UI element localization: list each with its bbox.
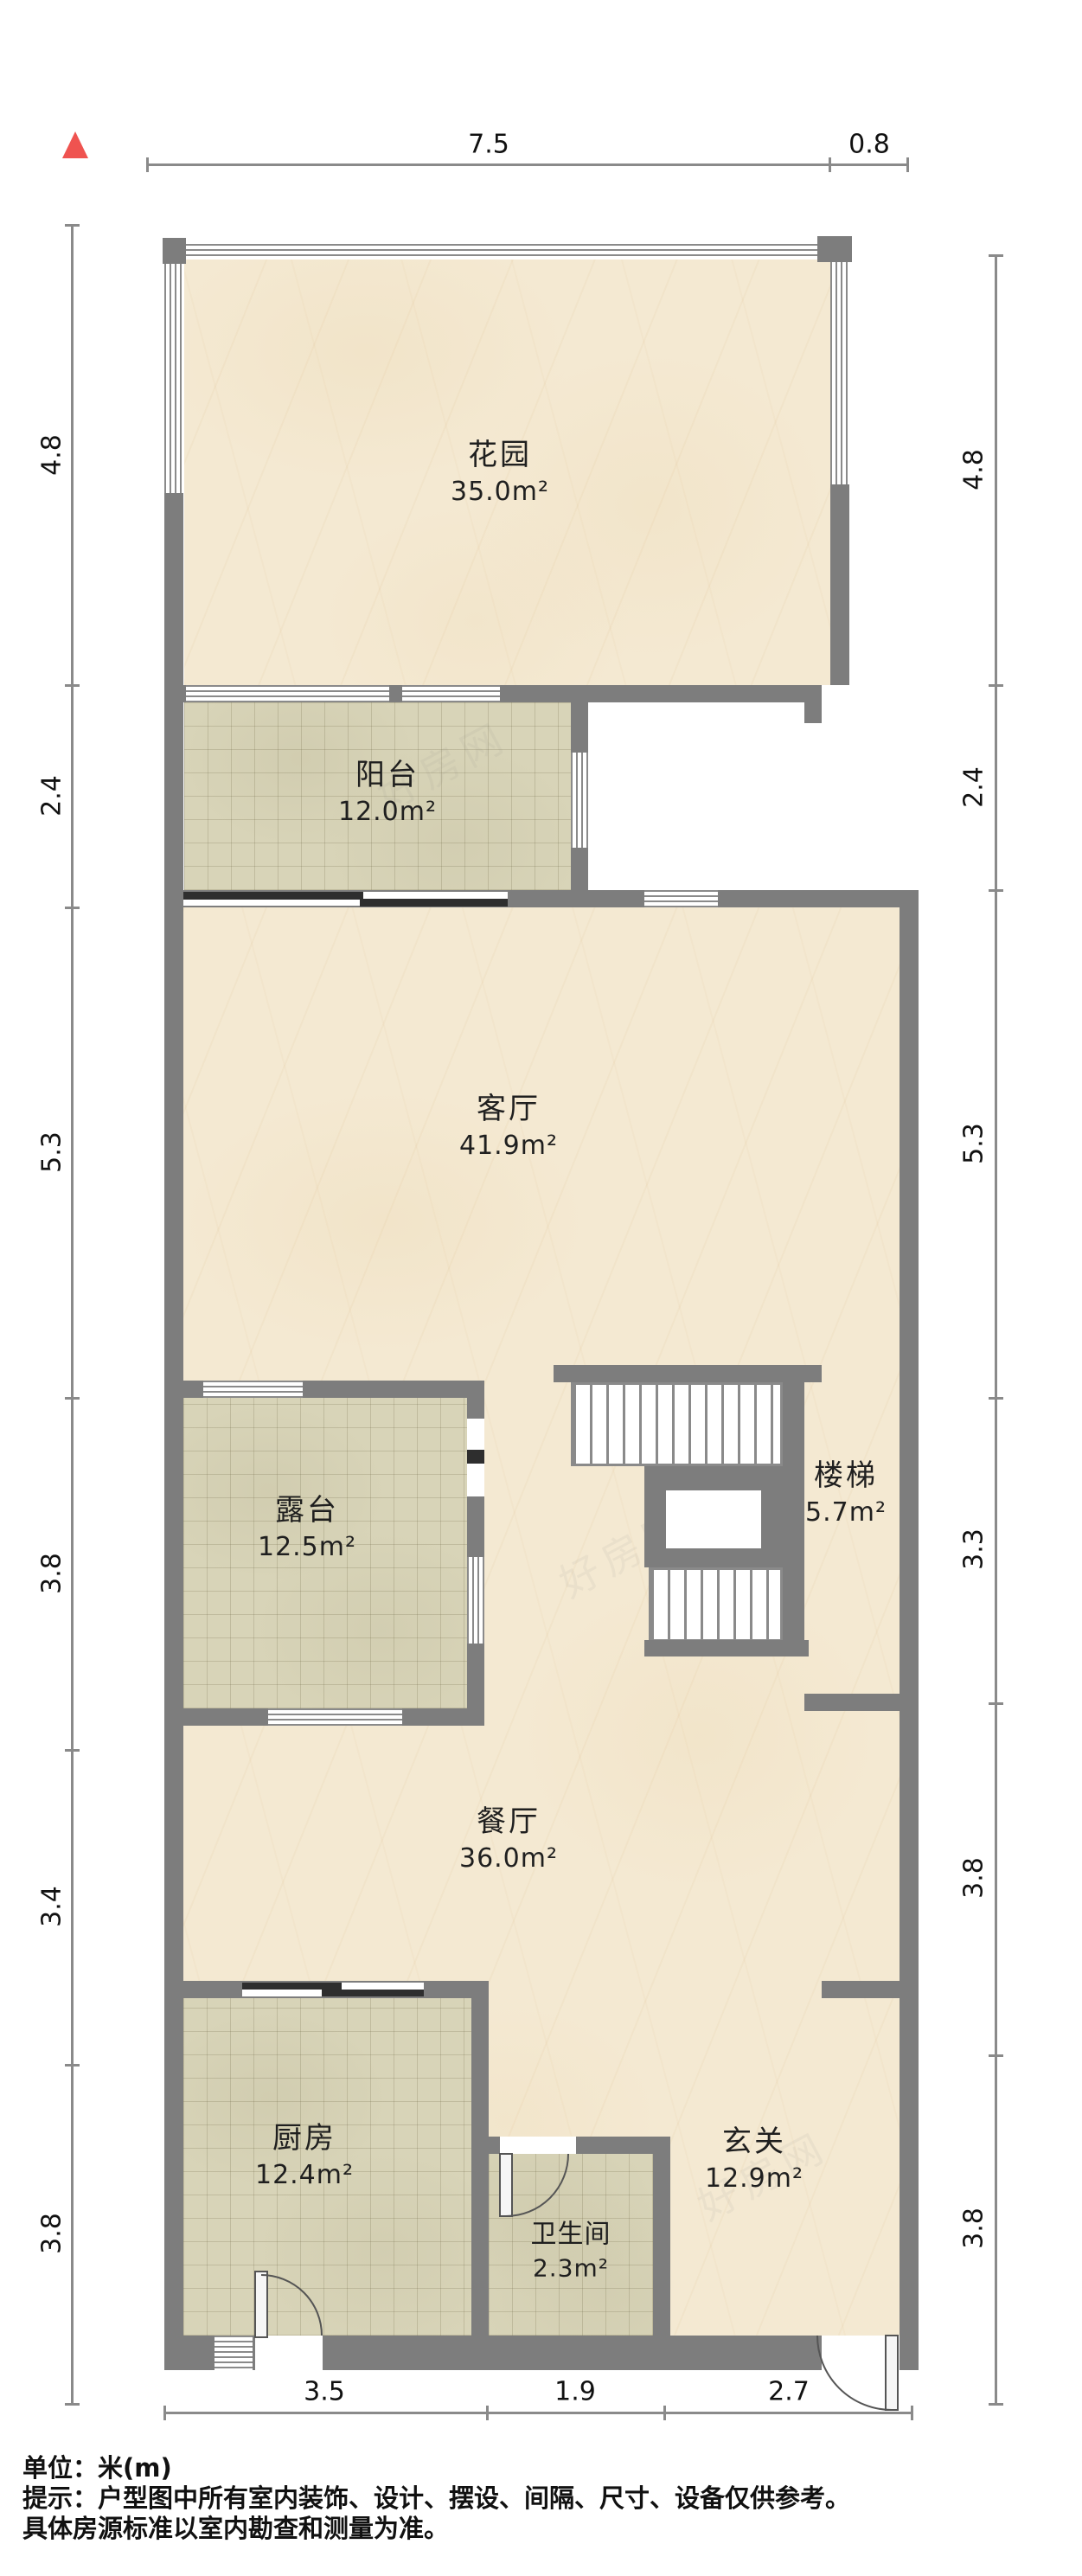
room-label-living: 客厅 41.9m² [459,1085,558,1161]
room-area: 36.0m² [459,1843,558,1874]
tick [65,1397,80,1400]
dim-label: 0.8 [848,130,890,160]
dim-label: 5.3 [959,1123,989,1164]
wall [163,238,186,264]
floorplan-canvas: 好房网 好房网 好房网 [0,0,1082,2576]
notes-tip-line1: 提示：户型图中所有室内装饰、设计、摆设、间隔、尺寸、设备仅供参考。 [22,2483,850,2514]
dim-label: 3.8 [959,1857,989,1899]
tick [65,2403,80,2406]
dim-label: 3.3 [959,1528,989,1570]
wall [164,493,183,2370]
north-arrow-icon [62,131,88,158]
room-name: 玄关 [705,2118,803,2160]
notes: 单位：米(m) 提示：户型图中所有室内装饰、设计、摆设、间隔、尺寸、设备仅供参考… [22,2453,850,2544]
sliding-door-leaf [242,1983,342,1990]
tick [65,224,80,227]
tick [989,684,1003,687]
dim-label: 4.8 [959,449,989,490]
room-area: 12.9m² [705,2163,803,2194]
door-opening [822,2336,900,2370]
room-label-stairs: 楼梯 5.7m² [805,1451,887,1528]
dim-label: 4.8 [37,434,67,476]
room-name: 厨房 [255,2114,354,2156]
wall [804,702,822,723]
dim-label: 5.3 [37,1131,67,1173]
dim-label: 1.9 [554,2377,596,2407]
room-name: 阳台 [338,751,437,793]
tick [65,2064,80,2067]
sliding-door-leaf [183,892,363,900]
window [164,264,183,493]
wall [588,890,919,907]
room-label-entry: 玄关 12.9m² [705,2118,803,2194]
room-name: 卫生间 [531,2213,611,2251]
dim-label: 2.4 [959,766,989,808]
notes-tip-line2: 具体房源标准以室内勘查和测量为准。 [22,2514,850,2544]
wall [783,1382,804,1656]
tick [989,889,1003,892]
tick [989,2054,1003,2057]
room-label-terrace: 露台 12.5m² [258,1486,356,1562]
tick [989,254,1003,257]
room-label-balcony: 阳台 12.0m² [338,751,437,827]
room-area: 5.7m² [805,1497,887,1528]
room-area: 35.0m² [451,477,549,507]
wall [653,2137,670,2336]
dim-label: 3.8 [37,1553,67,1594]
room-label-garden: 花园 35.0m² [451,431,549,507]
dim-label: 2.4 [37,775,67,817]
window [467,1557,484,1644]
tick [65,684,80,687]
room-label-kitchen: 厨房 12.4m² [255,2114,354,2190]
window [644,890,718,907]
room-area: 41.9m² [459,1131,558,1161]
dimension-line-left [71,225,74,2405]
tick [829,157,831,172]
room-name: 楼梯 [805,1451,887,1494]
dim-label: 3.8 [37,2213,67,2254]
room-name: 餐厅 [459,1797,558,1840]
sliding-door-leaf [322,1990,424,1996]
window [402,685,500,702]
stairs-lower-flight [649,1567,783,1642]
room-area: 2.3m² [531,2254,611,2283]
room-area: 12.5m² [258,1532,356,1562]
wall [471,1981,489,2336]
room-label-dining: 餐厅 36.0m² [459,1797,558,1874]
wall [817,236,852,262]
room-name: 花园 [451,431,549,473]
tick [906,157,909,172]
wall [900,890,919,2370]
tick [911,2406,913,2420]
window [203,1381,303,1398]
room-area: 12.4m² [255,2160,354,2190]
window [571,753,588,848]
dimension-line-bottom [164,2412,912,2414]
room-name: 露台 [258,1486,356,1528]
tick [486,2406,489,2420]
window [830,262,849,484]
wall [830,484,849,685]
tick [989,2403,1003,2406]
sliding-door-leaf [360,899,508,907]
tick [146,157,149,172]
stairs-void [666,1490,761,1548]
tick [989,1702,1003,1705]
tick [163,2406,166,2420]
window [214,2336,253,2370]
dimension-line-right [995,255,997,2405]
window [186,685,389,702]
tick [65,907,80,909]
tick [663,2406,666,2420]
dimension-line-top [147,163,908,166]
dim-label: 2.7 [768,2377,810,2407]
wall [804,1694,919,1711]
door-opening [255,2336,323,2370]
stairs-upper-flight [571,1382,783,1466]
dim-label: 3.4 [37,1886,67,1927]
tick [989,1397,1003,1400]
room-area: 12.0m² [338,797,437,827]
dim-label: 3.5 [304,2377,345,2407]
tick [65,1749,80,1752]
room-label-bathroom: 卫生间 2.3m² [531,2213,611,2283]
dim-label: 3.8 [959,2208,989,2249]
window [268,1708,402,1726]
wall [822,1981,919,1998]
notes-unit: 单位：米(m) [22,2453,850,2483]
wall [554,1365,822,1382]
window [186,244,817,260]
door-stop [467,1450,484,1464]
room-name: 客厅 [459,1085,558,1127]
dim-label: 7.5 [468,130,509,160]
door-opening [500,2137,576,2154]
